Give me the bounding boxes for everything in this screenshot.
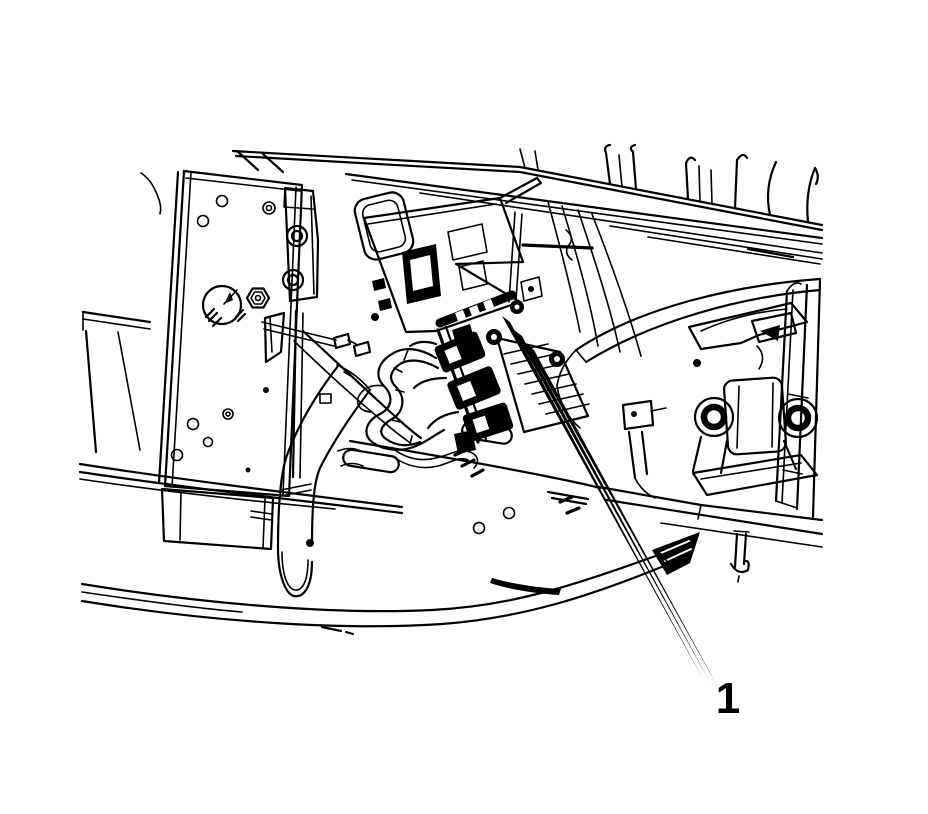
frame-rail-right bbox=[599, 487, 822, 547]
finned-bracket bbox=[497, 300, 589, 432]
locating-pin bbox=[731, 531, 749, 582]
rail-slot bbox=[342, 449, 400, 474]
engine-mount-bracket bbox=[623, 303, 817, 582]
fender-rail bbox=[141, 151, 822, 264]
left-bumper-bracket bbox=[83, 312, 150, 452]
support-tube bbox=[262, 313, 421, 596]
ecm-label bbox=[448, 224, 487, 260]
engine-compartment-line-art: 1 bbox=[0, 0, 928, 814]
technical-illustration: 1 bbox=[0, 0, 928, 814]
hex-bolt bbox=[247, 289, 269, 308]
mounting-eyelet bbox=[352, 190, 416, 262]
panel-lower-extension bbox=[162, 489, 314, 549]
ecm-module bbox=[352, 178, 592, 332]
harness-clips bbox=[520, 145, 818, 222]
frame-rail bbox=[80, 421, 600, 595]
front-fascia bbox=[82, 554, 669, 634]
callout-1-label: 1 bbox=[716, 674, 740, 723]
alignment-cutout bbox=[203, 286, 245, 326]
bracket-flap bbox=[265, 313, 284, 362]
electrical-connectors bbox=[410, 324, 514, 454]
